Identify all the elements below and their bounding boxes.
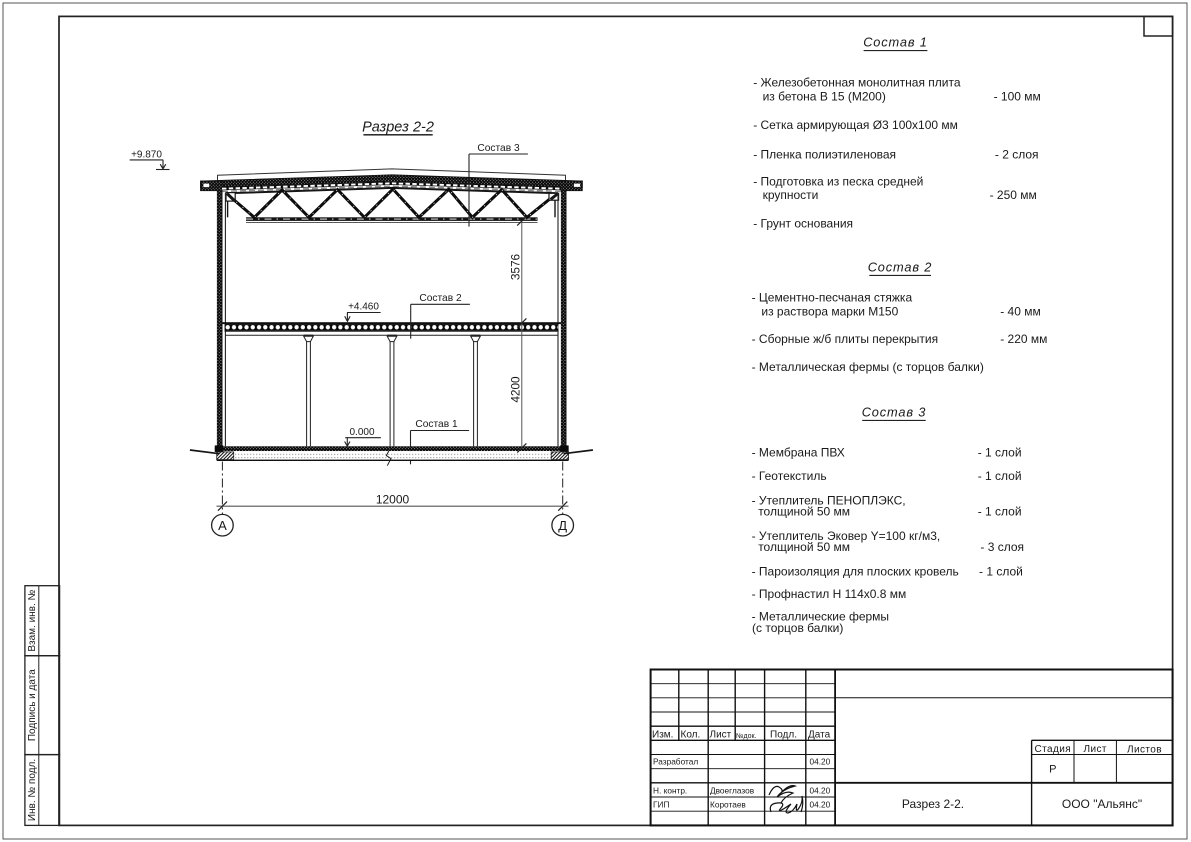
svg-text:- Профнастил Н 114x0.8 мм: - Профнастил Н 114x0.8 мм xyxy=(752,587,907,601)
svg-text:Лист: Лист xyxy=(710,729,732,740)
svg-text:- Подготовка из песка средней: - Подготовка из песка средней xyxy=(753,175,923,189)
svg-text:Двоеглазов: Двоеглазов xyxy=(710,785,755,795)
svg-text:Изм.: Изм. xyxy=(652,729,673,740)
svg-text:- 100 мм: - 100 мм xyxy=(994,89,1041,103)
svg-text:А: А xyxy=(218,518,227,533)
svg-text:Взам. инв. №: Взам. инв. № xyxy=(27,589,38,651)
svg-text:- Сборные ж/б плиты перекрытия: - Сборные ж/б плиты перекрытия xyxy=(752,332,938,346)
svg-text:- 3 слоя: - 3 слоя xyxy=(980,540,1024,554)
svg-text:Разрез 2-2.: Разрез 2-2. xyxy=(902,797,964,811)
svg-text:12000: 12000 xyxy=(376,493,410,507)
svg-text:+4.460: +4.460 xyxy=(348,302,379,313)
svg-text:04.20: 04.20 xyxy=(810,757,831,767)
svg-text:0.000: 0.000 xyxy=(349,427,374,438)
svg-text:Кол.: Кол. xyxy=(681,729,701,740)
svg-text:+9.870: +9.870 xyxy=(131,149,162,160)
svg-text:толщиной 50 мм: толщиной 50 мм xyxy=(758,540,850,554)
svg-text:Листов: Листов xyxy=(1127,745,1162,756)
svg-text:Состав 2: Состав 2 xyxy=(419,293,462,304)
svg-text:Лист: Лист xyxy=(1084,744,1107,755)
svg-text:- Грунт основания: - Грунт основания xyxy=(753,216,853,230)
svg-text:- 220 мм: - 220 мм xyxy=(1000,332,1047,346)
svg-text:Стадия: Стадия xyxy=(1035,744,1072,755)
svg-text:Состав 3: Состав 3 xyxy=(862,404,927,419)
svg-text:Инв. № подл.: Инв. № подл. xyxy=(27,759,38,821)
svg-text:ГИП: ГИП xyxy=(653,800,669,810)
svg-text:- Мембрана ПВХ: - Мембрана ПВХ xyxy=(752,445,845,459)
svg-text:04.20: 04.20 xyxy=(810,800,831,810)
svg-text:- 250 мм: - 250 мм xyxy=(990,188,1037,202)
svg-text:4200: 4200 xyxy=(509,376,523,403)
svg-text:крупности: крупности xyxy=(763,188,819,202)
svg-text:04.20: 04.20 xyxy=(810,785,831,795)
svg-text:(с торцов балки): (с торцов балки) xyxy=(752,621,843,635)
svg-text:Подл.: Подл. xyxy=(770,729,797,740)
svg-text:- 40 мм: - 40 мм xyxy=(1000,305,1041,319)
svg-text:- 2 слоя: - 2 слоя xyxy=(995,148,1039,162)
svg-text:Состав 1: Состав 1 xyxy=(863,35,928,50)
svg-text:Разработал: Разработал xyxy=(653,757,698,767)
svg-text:Дата: Дата xyxy=(808,729,831,740)
svg-text:Состав 1: Состав 1 xyxy=(415,419,458,430)
svg-text:ООО "Альянс": ООО "Альянс" xyxy=(1062,797,1142,811)
svg-text:Состав 2: Состав 2 xyxy=(868,259,933,274)
svg-text:толщиной 50 мм: толщиной 50 мм xyxy=(758,504,850,518)
svg-text:из раствора марки М150: из раствора марки М150 xyxy=(761,305,898,319)
svg-text:- 1 слой: - 1 слой xyxy=(978,469,1022,483)
svg-text:Д: Д xyxy=(558,518,567,533)
svg-text:из бетона В 15 (М200): из бетона В 15 (М200) xyxy=(763,89,886,103)
svg-text:- Металлическая фермы (с торцо: - Металлическая фермы (с торцов балки) xyxy=(752,360,984,374)
svg-text:Р: Р xyxy=(1049,764,1056,776)
svg-text:- Геотекстиль: - Геотекстиль xyxy=(752,469,827,483)
svg-text:- Пароизоляция для плоских кро: - Пароизоляция для плоских кровель xyxy=(752,564,959,578)
svg-text:- 1 слой: - 1 слой xyxy=(978,445,1022,459)
svg-text:Коротаев: Коротаев xyxy=(710,800,746,810)
svg-text:Разрез 2-2: Разрез 2-2 xyxy=(362,120,434,136)
svg-text:3576: 3576 xyxy=(509,253,523,280)
svg-text:- Цементно-песчаная стяжка: - Цементно-песчаная стяжка xyxy=(752,290,913,304)
svg-text:- 1 слой: - 1 слой xyxy=(979,564,1023,578)
svg-text:- 1 слой: - 1 слой xyxy=(978,504,1022,518)
svg-text:Подпись и дата: Подпись и дата xyxy=(27,669,38,741)
svg-text:Н. контр.: Н. контр. xyxy=(653,785,687,795)
svg-text:№док.: №док. xyxy=(736,733,757,740)
svg-text:Состав 3: Состав 3 xyxy=(477,143,520,154)
svg-text:- Сетка армирующая Ø3 100x100: - Сетка армирующая Ø3 100x100 мм xyxy=(753,118,958,132)
svg-text:- Железобетонная монолитная п: - Железобетонная монолитная плита xyxy=(753,75,961,89)
svg-text:- Пленка полиэтиленовая: - Пленка полиэтиленовая xyxy=(753,148,896,162)
